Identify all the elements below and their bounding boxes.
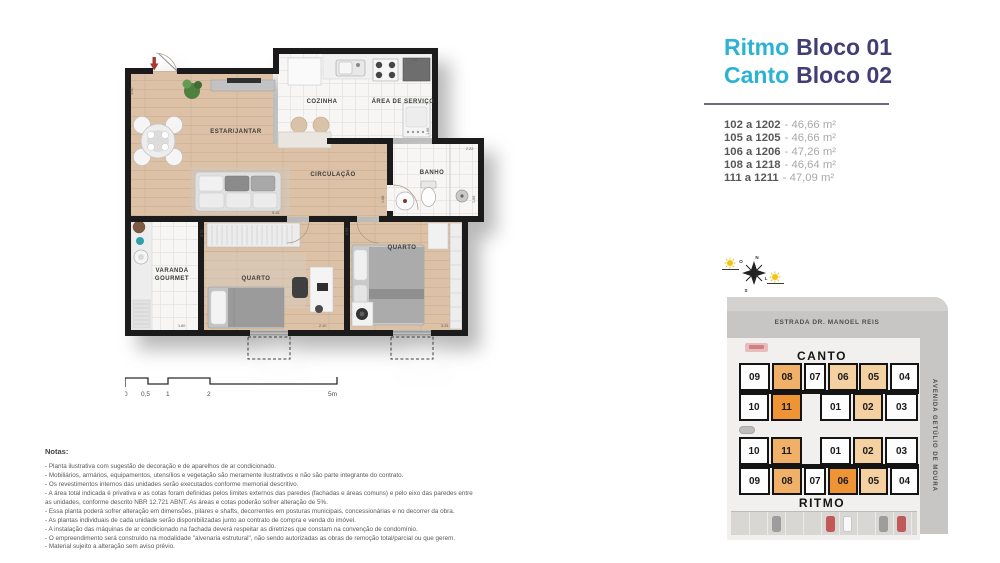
canto-unit-10: 10: [739, 393, 769, 421]
svg-text:1.66: 1.66: [426, 128, 430, 135]
ritmo-unit-10: 10: [739, 437, 769, 465]
svg-text:3.70: 3.70: [200, 230, 204, 237]
island-counter: [278, 132, 331, 148]
desk-chair: [292, 277, 308, 298]
svg-text:1.60: 1.60: [178, 324, 185, 328]
ritmo-unit-03: 03: [885, 437, 918, 465]
canto-unit-06: 06: [828, 363, 858, 391]
balcony-label-1: VARANDA: [155, 268, 188, 274]
svg-text:1.92: 1.92: [410, 58, 417, 62]
unit-list: 102 a 1202- 46,66 m² 105 a 1205- 46,66 m…: [724, 119, 836, 185]
title-divider: [704, 103, 889, 105]
canto-unit-01: 01: [820, 393, 851, 421]
street-top-label: ESTRADA DR. MANOEL REIS: [727, 319, 927, 326]
note-line: - Os revestimentos internos das unidades…: [45, 481, 481, 490]
canto-unit-11: 11: [771, 393, 802, 421]
notes-title: Notas:: [45, 447, 481, 456]
canto-unit-02: 02: [853, 393, 883, 421]
developer-logo: [745, 343, 768, 352]
unit-area: - 47,09 m²: [783, 172, 834, 184]
canto-unit-05: 05: [859, 363, 888, 391]
canto-unit-08: 08: [772, 363, 802, 391]
unit-range: 111 a 1211: [724, 172, 779, 184]
ritmo-unit-04: 04: [890, 467, 919, 495]
scale-0: 0: [125, 391, 128, 398]
balcony-label-2: GOURMET: [155, 276, 189, 282]
car-icon: [897, 516, 906, 532]
living-label: ESTAR/JANTAR: [210, 129, 262, 135]
round-table: [133, 221, 145, 233]
unit-row: 111 a 1211- 47,09 m²: [724, 172, 836, 185]
compass-star-icon: [742, 261, 766, 285]
car-icon: [826, 516, 835, 532]
car-icon: [843, 516, 852, 532]
bath-label: BANHO: [420, 170, 445, 176]
note-line: - A instalação das máquinas de ar condic…: [45, 526, 481, 535]
note-line: - As plantas individuais de cada unidade…: [45, 517, 481, 526]
note-line: - Material sujeito a alteração sem aviso…: [45, 543, 481, 552]
block-02: Bloco 02: [796, 62, 892, 88]
sun-east-icon: [767, 272, 784, 284]
unit-area: - 47,26 m²: [785, 146, 836, 158]
svg-text:2.22: 2.22: [466, 147, 473, 151]
scale-bar: 0 0,5 1 2 5m: [125, 373, 345, 401]
compass-n: N: [755, 255, 758, 260]
ritmo-unit-05: 05: [859, 467, 888, 495]
compass-s: S: [744, 288, 747, 293]
unit-row: 106 a 1206- 47,26 m²: [724, 146, 836, 159]
page-title: RitmoBloco 01 CantoBloco 02: [724, 33, 892, 89]
brand-canto: Canto: [724, 62, 789, 88]
page: ESTAR/JANTAR COZINHA ÁREA DE SERVIÇO CIR…: [0, 0, 1000, 563]
sun-west-icon: [722, 258, 739, 270]
circulation-label: CIRCULAÇÃO: [310, 171, 355, 178]
unit-range: 106 a 1206: [724, 146, 781, 158]
canto-unit-04: 04: [890, 363, 919, 391]
planter: [739, 426, 755, 434]
service-label: ÁREA DE SERVIÇO: [372, 98, 435, 105]
svg-text:3.90: 3.90: [130, 88, 134, 95]
street-sidewalk: [727, 297, 948, 311]
unit-area: - 46,64 m²: [785, 159, 836, 171]
stool: [291, 117, 307, 133]
svg-text:2.10: 2.10: [319, 324, 326, 328]
floor-plan-drawing: ESTAR/JANTAR COZINHA ÁREA DE SERVIÇO CIR…: [122, 45, 490, 365]
note-line: - Essa planta poderá sofrer alteração em…: [45, 508, 481, 517]
site-map: ESTRADA DR. MANOEL REIS CANTO 09 08 07 0…: [727, 297, 948, 543]
bedroom2-label: QUARTO: [388, 245, 417, 251]
unit-range: 102 a 1202: [724, 119, 781, 131]
car-icon: [772, 516, 781, 532]
ritmo-unit-02: 02: [853, 437, 883, 465]
canto-unit-03: 03: [885, 393, 918, 421]
scale-05: 0,5: [141, 391, 150, 398]
notes-section: Notas: - Planta ilustrativa com sugestão…: [45, 447, 481, 552]
street-right-label: AVENIDA GETÚLIO DE MOURA: [931, 379, 937, 492]
bedroom2-pouf: [352, 302, 373, 326]
decor-vase: [136, 237, 144, 245]
unit-range: 108 a 1218: [724, 159, 781, 171]
desk-plant: [315, 305, 323, 313]
brand-ritmo: Ritmo: [724, 34, 789, 60]
bedroom1-bed: [208, 287, 284, 328]
note-line: - O empreendimento será construído na mo…: [45, 535, 481, 544]
ritmo-unit-01: 01: [820, 437, 851, 465]
kitchen-label: COZINHA: [307, 99, 338, 105]
bedroom1-label: QUARTO: [242, 276, 271, 282]
ritmo-unit-06: 06: [828, 467, 858, 495]
ritmo-unit-09: 09: [739, 467, 770, 495]
svg-text:3.25: 3.25: [441, 324, 448, 328]
title-line-1: RitmoBloco 01: [724, 33, 892, 61]
stool: [313, 117, 329, 133]
title-line-2: CantoBloco 02: [724, 61, 892, 89]
unit-row: 102 a 1202- 46,66 m²: [724, 119, 836, 132]
compass-rose: N S L O: [722, 252, 792, 303]
canto-unit-09: 09: [739, 363, 770, 391]
balcony-counter: [131, 221, 152, 330]
unit-area: - 46,66 m²: [785, 132, 836, 144]
compass-drawing: N S L O: [722, 252, 792, 298]
street-top: ESTRADA DR. MANOEL REIS: [727, 297, 948, 338]
site-map-grounds: CANTO 09 08 07 06 05 04 10 11 01 02 03 1…: [727, 338, 920, 540]
compass-o: O: [739, 259, 743, 264]
parking-strip: [731, 511, 917, 535]
bedroom1-wardrobe: [207, 223, 300, 247]
canto-unit-07: 07: [804, 363, 826, 391]
svg-text:5.15: 5.15: [272, 211, 279, 215]
canto-block-label: CANTO: [772, 349, 872, 363]
compass-l: L: [765, 276, 768, 281]
scale-5m: 5m: [328, 391, 337, 398]
car-icon: [879, 516, 888, 532]
dining-table: [134, 117, 183, 166]
street-right: AVENIDA GETÚLIO DE MOURA: [920, 338, 948, 534]
entrance-door: [159, 54, 177, 71]
note-line: - A área total indicada é privativa e as…: [45, 490, 481, 508]
sofa: [195, 172, 281, 211]
ritmo-block-label: RITMO: [772, 496, 872, 510]
stove: [373, 59, 398, 81]
block-01: Bloco 01: [796, 34, 892, 60]
ritmo-unit-07: 07: [804, 467, 826, 495]
unit-row: 105 a 1205- 46,66 m²: [724, 132, 836, 145]
kitchen-cabinet: [288, 58, 321, 85]
svg-text:1.66: 1.66: [472, 196, 476, 203]
unit-range: 105 a 1205: [724, 132, 781, 144]
svg-text:1.68: 1.68: [381, 196, 385, 203]
ritmo-unit-08: 08: [772, 467, 802, 495]
bath-sink: [396, 192, 414, 210]
ritmo-unit-11: 11: [771, 437, 802, 465]
note-line: - Mobiliários, armários, equipamentos, u…: [45, 472, 481, 481]
unit-row: 108 a 1218- 46,64 m²: [724, 159, 836, 172]
scale-2: 2: [207, 391, 211, 398]
toilet: [421, 181, 436, 207]
note-line: - Planta ilustrativa com sugestão de dec…: [45, 463, 481, 472]
floor-plan: ESTAR/JANTAR COZINHA ÁREA DE SERVIÇO CIR…: [122, 45, 490, 365]
unit-area: - 46,66 m²: [785, 119, 836, 131]
svg-text:2.93: 2.93: [345, 228, 349, 235]
scale-1: 1: [166, 391, 170, 398]
tv-cabinet: [211, 78, 275, 91]
scale-bar-drawing: 0 0,5 1 2 5m: [125, 373, 345, 401]
circulation-floor: [273, 144, 387, 217]
